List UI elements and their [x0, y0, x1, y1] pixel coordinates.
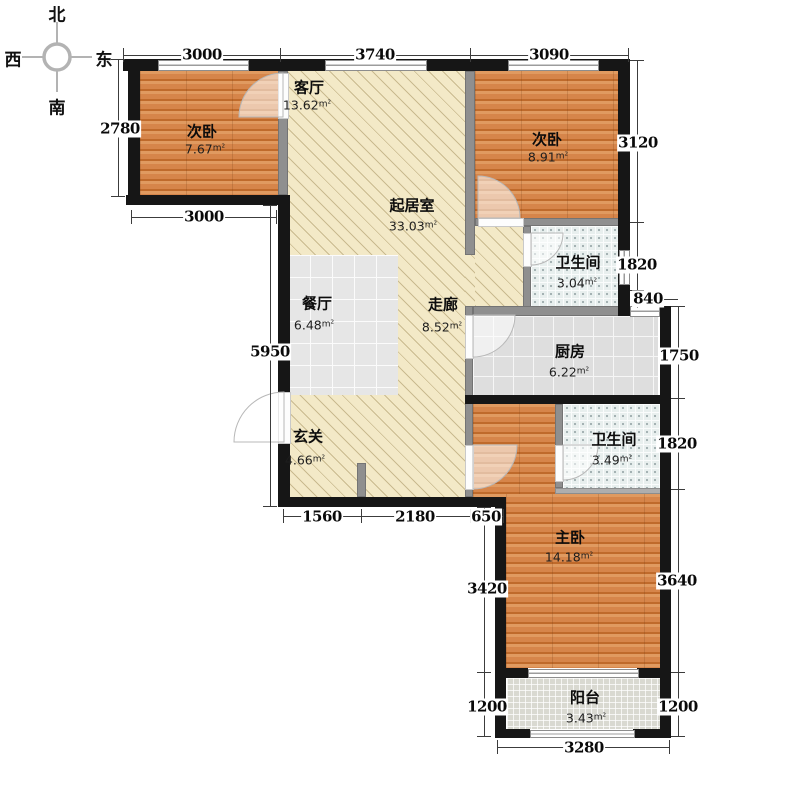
floor-corridor-b: [475, 226, 523, 306]
dim-lower-3420: 3420: [466, 581, 508, 598]
tick: [671, 672, 685, 673]
wall-foyer-stub: [357, 463, 366, 497]
wall-bedroom-left-south: [126, 195, 288, 205]
window-master-balcony: [528, 669, 639, 678]
area-balcony: 3.43m²: [566, 711, 606, 726]
tick: [630, 222, 644, 223]
label-balcony: 阳台: [570, 687, 600, 708]
tick: [671, 306, 685, 307]
dim-left-3000: 3000: [183, 209, 225, 226]
tick: [669, 740, 670, 754]
dim-right-3120: 3120: [617, 135, 659, 152]
wall-balcony-south-right: [633, 729, 671, 738]
dim-left-2780: 2780: [99, 121, 141, 138]
tick: [671, 398, 685, 399]
wall-master-south-left: [506, 668, 528, 678]
floor-master-nook: [473, 404, 555, 498]
tick: [276, 210, 277, 224]
door-bedroom-right: [478, 218, 524, 227]
tick: [283, 509, 284, 523]
tick: [131, 210, 132, 224]
label-living: 客厅: [294, 77, 324, 98]
dim-top-3000: 3000: [181, 47, 223, 64]
door-kitchen: [465, 315, 474, 359]
tick: [111, 59, 125, 60]
tick: [361, 509, 362, 523]
wall-kitchen-north: [473, 306, 620, 316]
label-dining: 餐厅: [302, 293, 332, 314]
tick: [497, 740, 498, 754]
window-kitchen: [630, 306, 660, 317]
label-kitchen: 厨房: [555, 341, 585, 362]
area-bath-upper: 3.04m²: [557, 276, 597, 291]
door-entry: [278, 392, 291, 444]
label-bath-upper: 卫生间: [555, 252, 600, 273]
dim-right-1200: 1200: [657, 699, 699, 716]
window-balcony: [530, 730, 635, 738]
dim-top-3090: 3090: [528, 47, 570, 64]
label-bedroom-left: 次卧: [187, 121, 217, 142]
dim-bottom-650: 650: [470, 509, 502, 526]
dim-left-5950: 5950: [249, 344, 291, 361]
wall-kitchen-south: [465, 395, 671, 404]
compass-north: 北: [49, 1, 66, 26]
dim-right-1820b: 1820: [656, 436, 698, 453]
wall-balcony-south-left: [495, 729, 530, 738]
label-bedroom-right: 次卧: [532, 129, 562, 150]
dim-right-1820a: 1820: [616, 257, 658, 274]
compass-west: 西: [5, 46, 22, 71]
tick: [503, 509, 504, 523]
tick: [280, 48, 281, 62]
area-corridor: 8.52m²: [422, 320, 462, 335]
area-kitchen: 6.22m²: [549, 365, 589, 380]
wall-bath-lower-south: [555, 488, 663, 494]
door-bath-upper: [523, 233, 532, 267]
label-sitting: 起居室: [389, 195, 434, 216]
wall-master-south-right: [637, 668, 660, 678]
dim-right-1750: 1750: [658, 348, 700, 365]
label-master: 主卧: [555, 527, 585, 548]
dim-right-3640: 3640: [656, 573, 698, 590]
label-foyer: 玄关: [293, 426, 323, 447]
floor-master-main: [506, 494, 660, 668]
wall-hall-south: [278, 497, 506, 507]
tick: [111, 196, 125, 197]
tick: [628, 48, 629, 62]
dim-right-840: 840: [632, 291, 664, 308]
area-living: 13.62m²: [283, 98, 331, 113]
area-dining: 6.48m²: [294, 318, 334, 333]
dim-bottom-1560: 1560: [301, 509, 343, 526]
dim-bottom-2180: 2180: [394, 509, 436, 526]
dim-top-3740: 3740: [354, 47, 396, 64]
door-bath-lower: [555, 445, 564, 482]
door-master: [465, 445, 474, 490]
dim-lower-1200: 1200: [466, 699, 508, 716]
wall-bedroom-right-west: [465, 71, 475, 255]
floor-corridor-a: [465, 255, 475, 306]
area-foyer: 4.66m²: [285, 453, 325, 468]
compass-south: 南: [49, 94, 66, 119]
area-bedroom-left: 7.67m²: [185, 142, 225, 157]
area-sitting: 33.03m²: [389, 219, 437, 234]
dim-balcony-3280: 3280: [563, 740, 605, 757]
area-master: 14.18m²: [545, 550, 593, 565]
tick: [263, 205, 277, 206]
floor-plan: 北 西 东 南: [0, 0, 800, 800]
tick: [671, 736, 685, 737]
tick: [477, 736, 491, 737]
label-bath-lower: 卫生间: [591, 429, 636, 450]
tick: [470, 48, 471, 62]
area-bath-lower: 3.49m²: [592, 453, 632, 468]
tick: [671, 489, 685, 490]
area-bedroom-right: 8.91m²: [528, 150, 568, 165]
tick: [630, 60, 644, 61]
tick: [263, 506, 277, 507]
label-corridor: 走廊: [428, 294, 458, 315]
tick: [477, 672, 491, 673]
compass-east: 东: [96, 46, 113, 71]
